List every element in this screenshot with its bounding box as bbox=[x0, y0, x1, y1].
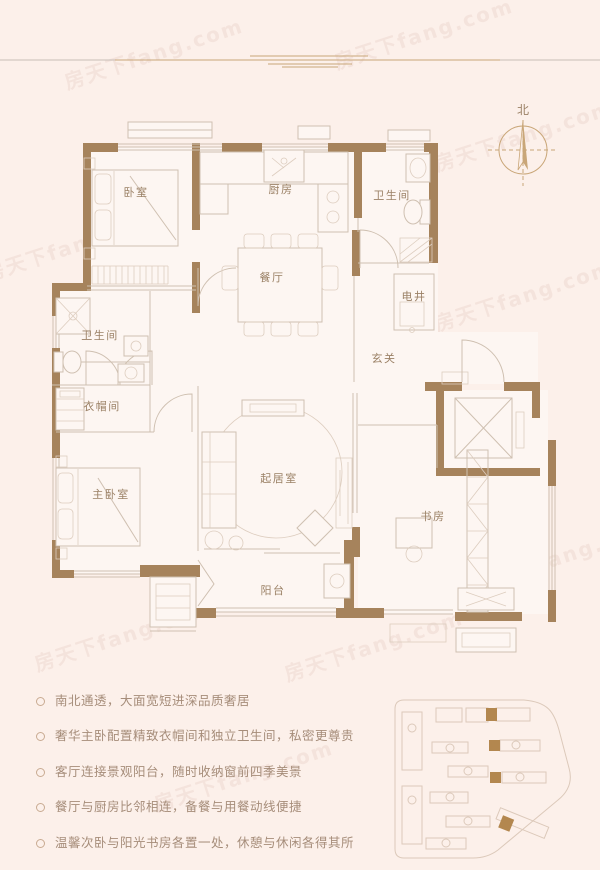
room-label-cloakroom: 衣帽间 bbox=[83, 399, 121, 413]
master-bed bbox=[56, 456, 140, 559]
bullet-icon bbox=[36, 803, 45, 812]
room-label-master: 主卧室 bbox=[92, 487, 130, 501]
room-label-study: 书房 bbox=[421, 510, 446, 523]
feature-text: 温馨次卧与阳光书房各置一处，休憩与休闲各得其所 bbox=[55, 836, 354, 850]
cloakroom-shelves bbox=[56, 388, 84, 430]
feature-item: 客厅连接景观阳台，随时收纳窗前四季美景 bbox=[36, 765, 376, 779]
room-label-kitchen: 厨房 bbox=[269, 183, 294, 196]
feature-item: 餐厅与厨房比邻相连，备餐与用餐动线便捷 bbox=[36, 800, 376, 814]
bullet-icon bbox=[36, 732, 45, 741]
feature-item: 奢华主卧配置精致衣帽间和独立卫生间，私密更尊贵 bbox=[36, 729, 376, 743]
room-label-balcony: 阳台 bbox=[261, 583, 286, 597]
decorative-divider bbox=[0, 56, 600, 67]
room-label-foyer: 玄关 bbox=[372, 351, 397, 365]
room-label-bath-top: 卫生间 bbox=[373, 188, 411, 202]
feature-item: 南北通透，大面宽短进深品质奢居 bbox=[36, 694, 376, 708]
room-label-bath-left: 卫生间 bbox=[81, 328, 119, 342]
dining-table bbox=[222, 234, 338, 336]
feature-text: 奢华主卧配置精致衣帽间和独立卫生间，私密更尊贵 bbox=[55, 729, 354, 743]
room-label-dining: 餐厅 bbox=[260, 270, 285, 284]
bullet-icon bbox=[36, 697, 45, 706]
room-label-shaft: 电井 bbox=[402, 289, 427, 303]
feature-text: 南北通透，大面宽短进深品质奢居 bbox=[55, 694, 250, 708]
feature-item: 温馨次卧与阳光书房各置一处，休憩与休闲各得其所 bbox=[36, 836, 376, 850]
feature-text: 客厅连接景观阳台，随时收纳窗前四季美景 bbox=[55, 765, 302, 779]
feature-list: 南北通透，大面宽短进深品质奢居 奢华主卧配置精致衣帽间和独立卫生间，私密更尊贵 … bbox=[36, 694, 376, 870]
floorplan-page: 房天下fang.com 房天下fang.com 房天下fang.com 房天下f… bbox=[0, 0, 600, 870]
north-compass-icon: 北 bbox=[488, 103, 558, 186]
north-label: 北 bbox=[517, 103, 529, 117]
bullet-icon bbox=[36, 839, 45, 848]
bullet-icon bbox=[36, 768, 45, 777]
room-label-bedroom: 卧室 bbox=[124, 185, 149, 199]
room-label-living: 起居室 bbox=[260, 471, 298, 485]
feature-text: 餐厅与厨房比邻相连，备餐与用餐动线便捷 bbox=[55, 800, 302, 814]
site-plan bbox=[395, 700, 570, 858]
